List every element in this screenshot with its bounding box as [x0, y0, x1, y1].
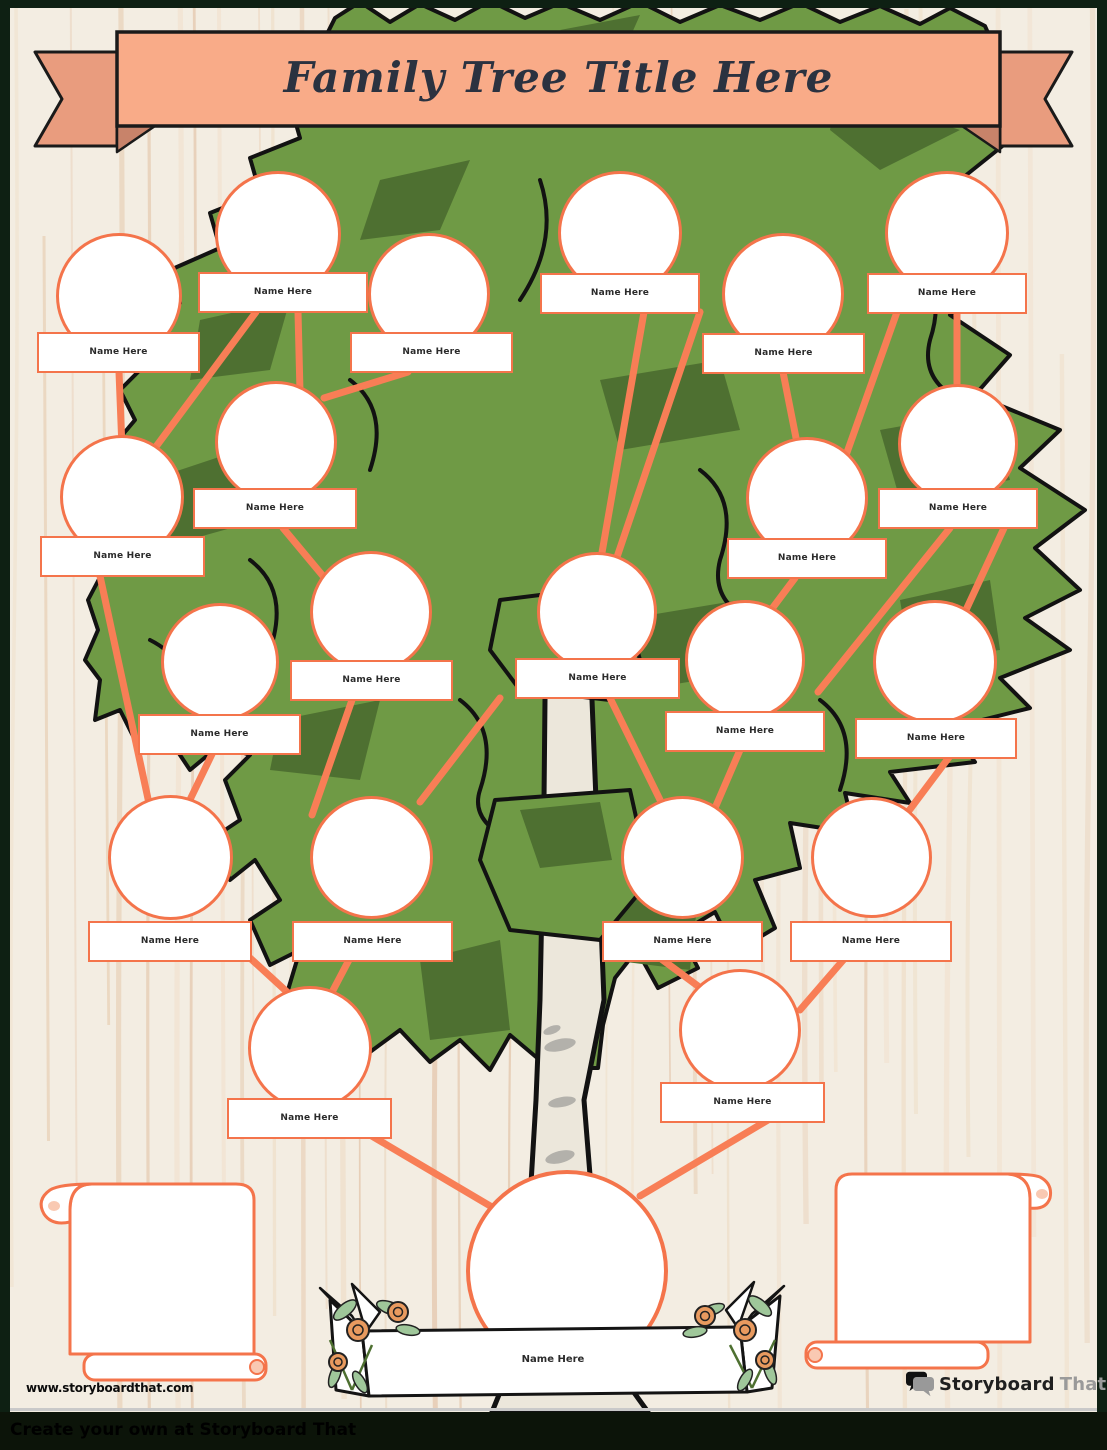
member-name-plate-18[interactable]: Name Here	[602, 921, 763, 962]
storyboardthat-logo: StoryboardThat	[906, 1369, 1106, 1399]
member-circle-16[interactable]	[108, 795, 233, 920]
member-name-plate-2[interactable]: Name Here	[198, 272, 368, 313]
logo-text-that: That	[1060, 1374, 1107, 1395]
footer-tagline: Create your own at Storyboard That	[10, 1412, 356, 1450]
member-name-plate-16[interactable]: Name Here	[88, 921, 252, 962]
member-circle-8[interactable]	[215, 381, 337, 503]
member-circle-18[interactable]	[621, 796, 744, 919]
member-name-plate-1[interactable]: Name Here	[37, 332, 200, 373]
member-name-plate-20[interactable]: Name Here	[227, 1098, 392, 1139]
member-circle-11[interactable]	[161, 603, 279, 721]
member-circle-14[interactable]	[685, 600, 805, 720]
member-name-plate-21[interactable]: Name Here	[660, 1082, 825, 1123]
member-circle-12[interactable]	[310, 551, 432, 673]
root-member-name-plate[interactable]: Name Here	[453, 1346, 653, 1374]
left-scroll[interactable]	[41, 1184, 266, 1380]
member-name-plate-9[interactable]: Name Here	[727, 538, 887, 579]
member-name-plate-8[interactable]: Name Here	[193, 488, 357, 529]
member-name-plate-10[interactable]: Name Here	[878, 488, 1038, 529]
member-name-plate-13[interactable]: Name Here	[515, 658, 680, 699]
member-circle-13[interactable]	[537, 552, 657, 672]
member-name-plate-12[interactable]: Name Here	[290, 660, 453, 701]
right-scroll[interactable]	[806, 1174, 1051, 1368]
footer-divider	[10, 1408, 1097, 1411]
member-name-plate-19[interactable]: Name Here	[790, 921, 952, 962]
logo-text-storyboard: Storyboard	[939, 1374, 1055, 1395]
member-name-plate-3[interactable]: Name Here	[350, 332, 513, 373]
member-name-plate-7[interactable]: Name Here	[40, 536, 205, 577]
member-circle-17[interactable]	[310, 796, 433, 919]
member-circle-15[interactable]	[873, 600, 997, 724]
member-circle-10[interactable]	[898, 384, 1018, 504]
storyboard-logo-icon	[906, 1370, 934, 1398]
member-circle-19[interactable]	[811, 797, 932, 918]
connector-line	[298, 312, 300, 392]
member-name-plate-15[interactable]: Name Here	[855, 718, 1017, 759]
member-name-plate-11[interactable]: Name Here	[138, 714, 301, 755]
root-member-circle[interactable]	[466, 1170, 668, 1372]
family-tree-title[interactable]: Family Tree Title Here	[117, 30, 1000, 126]
website-url: www.storyboardthat.com	[26, 1381, 194, 1395]
family-tree-template-page: { "page": { "title_banner": "Family Tree…	[0, 0, 1107, 1450]
member-name-plate-17[interactable]: Name Here	[292, 921, 453, 962]
member-circle-20[interactable]	[248, 986, 372, 1110]
member-name-plate-6[interactable]: Name Here	[867, 273, 1027, 314]
footer-bar: Create your own at Storyboard That	[0, 1412, 1107, 1450]
member-name-plate-14[interactable]: Name Here	[665, 711, 825, 752]
member-name-plate-4[interactable]: Name Here	[540, 273, 700, 314]
member-circle-21[interactable]	[679, 969, 801, 1091]
member-name-plate-5[interactable]: Name Here	[702, 333, 865, 374]
